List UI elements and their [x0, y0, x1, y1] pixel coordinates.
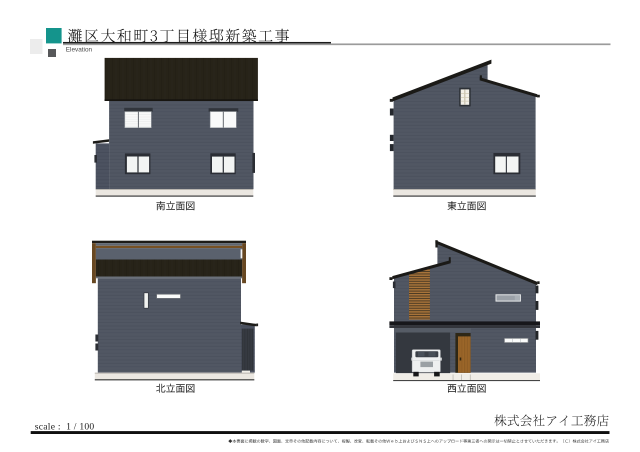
svg-text:Elevation: Elevation — [66, 46, 93, 53]
svg-text:scale : 1 / 100: scale : 1 / 100 — [35, 422, 95, 433]
